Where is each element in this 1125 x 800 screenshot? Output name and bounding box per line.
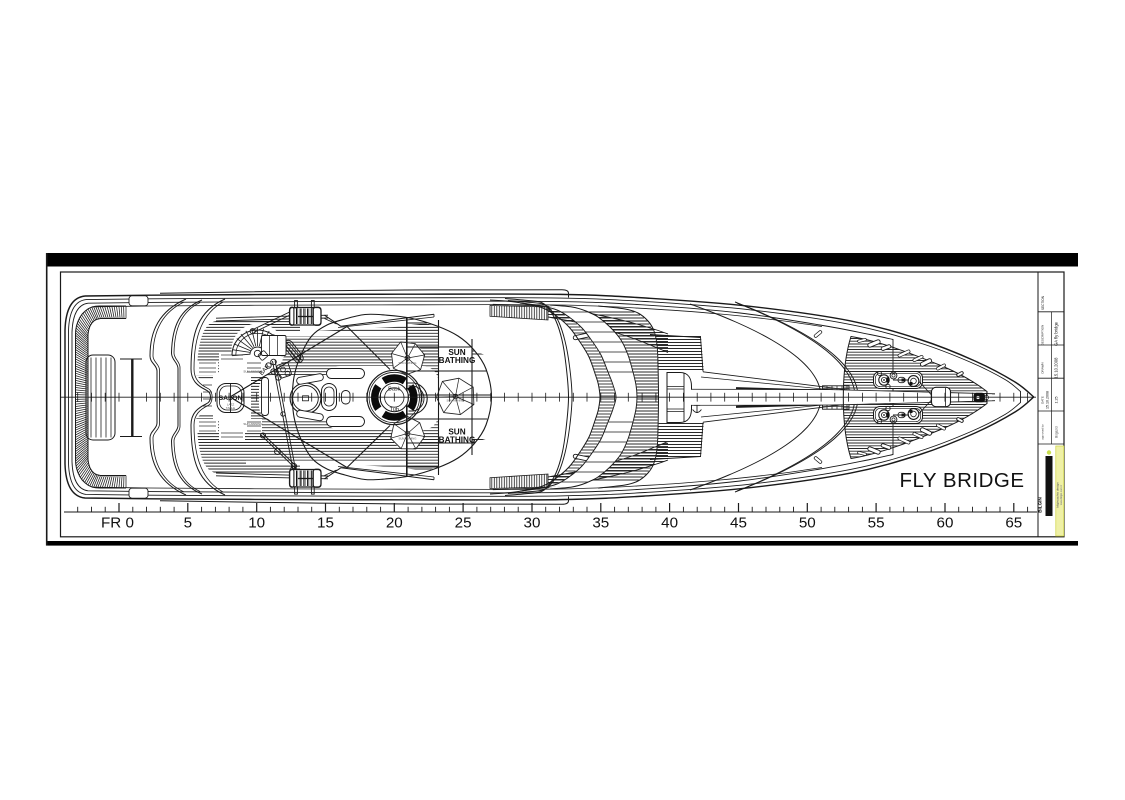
svg-text:15.10.2008: 15.10.2008 bbox=[1054, 357, 1059, 379]
svg-text:Bogazici: Bogazici bbox=[1055, 426, 1059, 438]
svg-text:55: 55 bbox=[868, 515, 885, 532]
svg-text:15: 15 bbox=[317, 515, 334, 532]
svg-text:approved by: approved by bbox=[1041, 424, 1045, 440]
svg-text:SUN AWNING: SUN AWNING bbox=[399, 361, 417, 365]
svg-text:40: 40 bbox=[661, 515, 678, 532]
svg-text:BATHING: BATHING bbox=[439, 436, 476, 445]
svg-text:25: 25 bbox=[455, 515, 472, 532]
svg-text:DATE: DATE bbox=[1041, 396, 1045, 404]
svg-text:10: 10 bbox=[248, 515, 265, 532]
svg-text:60: 60 bbox=[937, 515, 954, 532]
svg-text:1:25: 1:25 bbox=[1055, 397, 1059, 404]
svg-text:DESCRIPTION: DESCRIPTION bbox=[1041, 325, 1045, 346]
svg-text:FR 0: FR 0 bbox=[101, 515, 134, 532]
svg-text:FLY BRIDGE: FLY BRIDGE bbox=[900, 469, 1025, 492]
svg-text:SALON: SALON bbox=[219, 395, 243, 402]
svg-text:45: 45 bbox=[730, 515, 747, 532]
svg-text:SECTION: SECTION bbox=[1041, 295, 1045, 310]
svg-text:BATHING: BATHING bbox=[439, 356, 476, 365]
svg-text:15.10.2008: 15.10.2008 bbox=[1046, 391, 1050, 409]
svg-text:Tub: Tub bbox=[390, 407, 399, 413]
svg-text:SUN AWNING: SUN AWNING bbox=[243, 422, 263, 426]
svg-text:DRAWN: DRAWN bbox=[1041, 362, 1045, 373]
svg-text:bilginyachts design: bilginyachts design bbox=[1056, 482, 1060, 508]
svg-text:SUN AWNING: SUN AWNING bbox=[399, 437, 417, 441]
svg-text:Bask: Bask bbox=[388, 387, 400, 393]
svg-text:30: 30 bbox=[524, 515, 541, 532]
svg-text:50: 50 bbox=[799, 515, 816, 532]
svg-text:TABLE: TABLE bbox=[226, 406, 235, 410]
svg-text:GA fly bridge: GA fly bridge bbox=[1054, 321, 1059, 346]
svg-text:5: 5 bbox=[184, 515, 192, 532]
svg-text:65: 65 bbox=[1005, 515, 1022, 532]
svg-text:20: 20 bbox=[386, 515, 403, 532]
svg-text:BILGIN: BILGIN bbox=[1038, 497, 1043, 513]
svg-text:35: 35 bbox=[592, 515, 609, 532]
svg-text:www.bilgin.com.tr: www.bilgin.com.tr bbox=[1059, 485, 1063, 505]
